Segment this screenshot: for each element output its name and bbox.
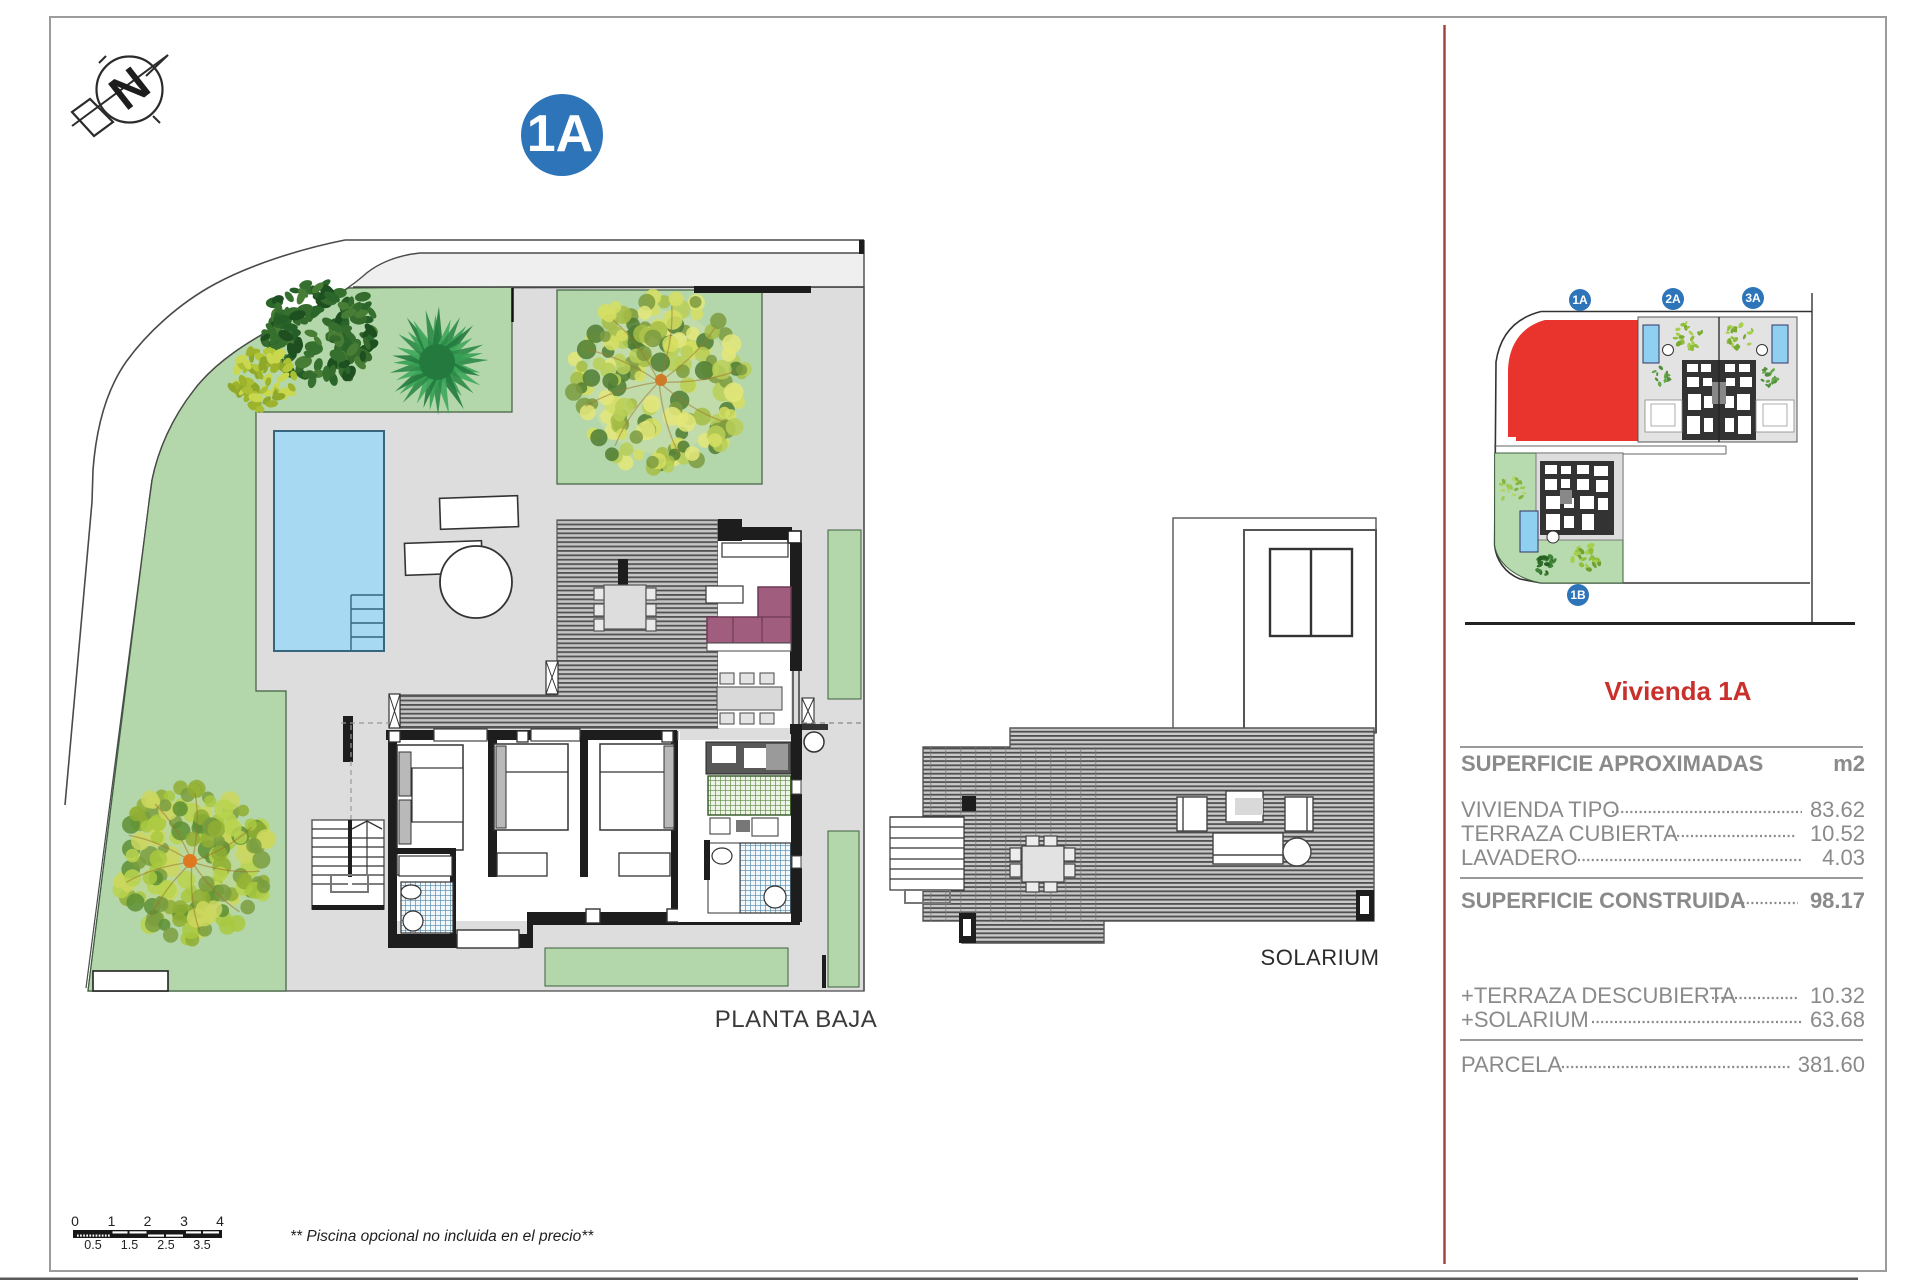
- svg-text:+SOLARIUM: +SOLARIUM: [1461, 1007, 1589, 1032]
- svg-text:+TERRAZA DESCUBIERTA: +TERRAZA DESCUBIERTA: [1461, 983, 1736, 1008]
- svg-text:2A: 2A: [1665, 292, 1681, 306]
- svg-text:PARCELA: PARCELA: [1461, 1052, 1562, 1077]
- svg-text:4: 4: [216, 1213, 224, 1229]
- svg-text:4.03: 4.03: [1822, 845, 1865, 870]
- svg-text:1.5: 1.5: [121, 1238, 138, 1252]
- svg-text:3A: 3A: [1745, 291, 1761, 305]
- svg-text:63.68: 63.68: [1810, 1007, 1865, 1032]
- svg-text:83.62: 83.62: [1810, 797, 1865, 822]
- svg-text:1B: 1B: [1570, 588, 1586, 602]
- svg-text:3.5: 3.5: [193, 1238, 210, 1252]
- svg-text:10.32: 10.32: [1810, 983, 1865, 1008]
- svg-text:Vivienda 1A: Vivienda 1A: [1605, 676, 1752, 706]
- svg-text:2: 2: [144, 1213, 152, 1229]
- svg-text:1A: 1A: [1572, 293, 1588, 307]
- svg-text:381.60: 381.60: [1798, 1052, 1865, 1077]
- svg-text:1: 1: [108, 1213, 116, 1229]
- svg-text:1A: 1A: [527, 105, 593, 163]
- svg-text:SOLARIUM: SOLARIUM: [1261, 945, 1380, 970]
- svg-text:2.5: 2.5: [157, 1238, 174, 1252]
- svg-text:m2: m2: [1833, 751, 1865, 776]
- svg-text:** Piscina opcional no incluid: ** Piscina opcional no incluida en el pr…: [290, 1228, 594, 1245]
- svg-text:98.17: 98.17: [1810, 888, 1865, 913]
- svg-text:PLANTA BAJA: PLANTA BAJA: [715, 1006, 877, 1033]
- svg-text:0: 0: [71, 1213, 79, 1229]
- svg-text:SUPERFICIE CONSTRUIDA: SUPERFICIE CONSTRUIDA: [1461, 888, 1746, 913]
- svg-text:SUPERFICIE APROXIMADAS: SUPERFICIE APROXIMADAS: [1461, 751, 1763, 776]
- svg-text:10.52: 10.52: [1810, 821, 1865, 846]
- svg-text:3: 3: [180, 1213, 188, 1229]
- svg-text:VIVIENDA TIPO: VIVIENDA TIPO: [1461, 797, 1620, 822]
- svg-text:LAVADERO: LAVADERO: [1461, 845, 1578, 870]
- svg-text:0.5: 0.5: [84, 1238, 101, 1252]
- svg-text:TERRAZA CUBIERTA: TERRAZA CUBIERTA: [1461, 821, 1678, 846]
